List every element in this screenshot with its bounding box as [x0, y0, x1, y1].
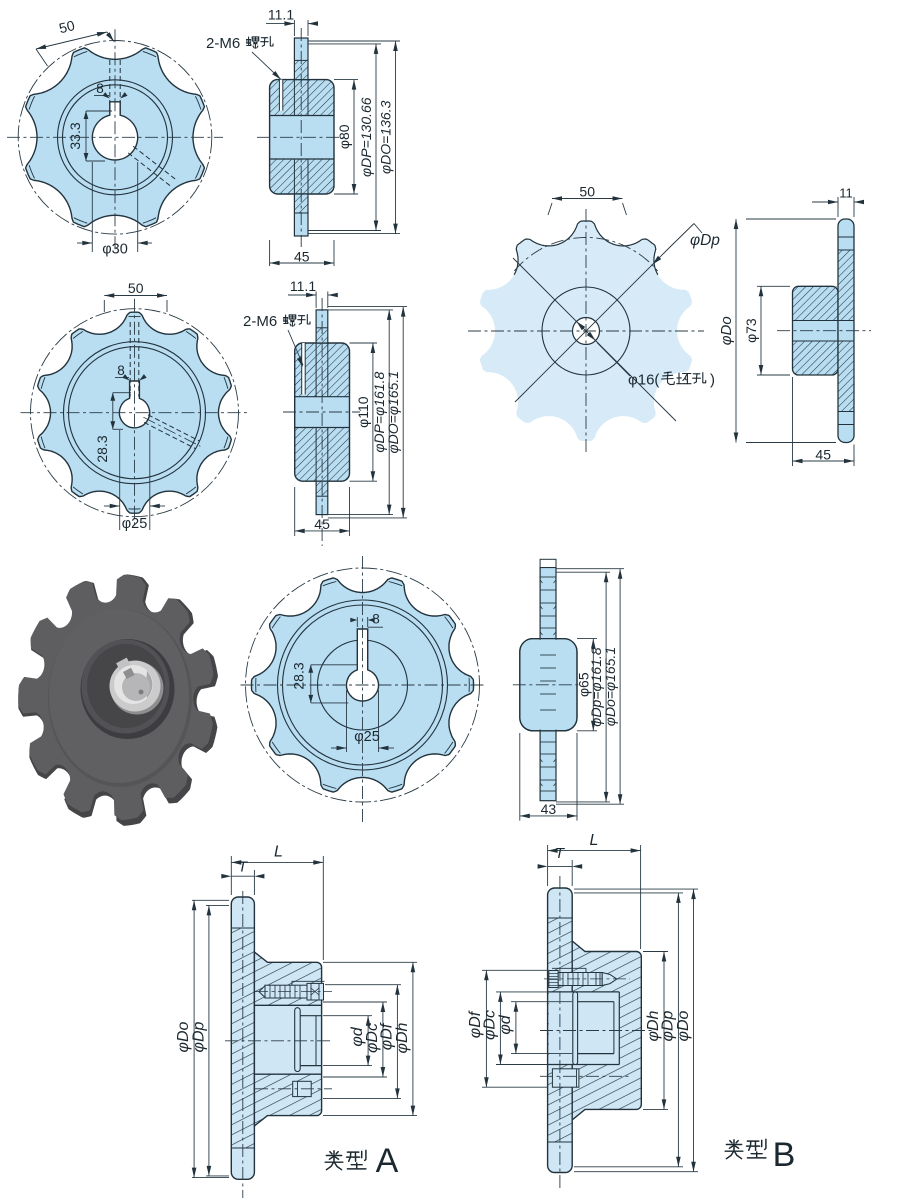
svg-text:φDp: φDp [191, 1021, 208, 1052]
svg-text:L: L [274, 844, 283, 861]
svg-text:φDp: φDp [660, 1010, 677, 1041]
svg-text:φDo: φDo [718, 316, 735, 345]
svg-text:φDp: φDp [690, 232, 720, 249]
svg-text:φ80: φ80 [336, 124, 352, 149]
svg-text:φd: φd [497, 1014, 514, 1034]
svg-text:45: 45 [314, 516, 330, 532]
svg-text:φDc: φDc [482, 1010, 499, 1040]
svg-text:11.1: 11.1 [290, 278, 316, 294]
svg-text:2-M6: 2-M6 [243, 313, 277, 330]
svg-text:28.3: 28.3 [291, 662, 307, 689]
svg-text:φ16(: φ16( [628, 372, 659, 389]
svg-text:φDo=φ165.1: φDo=φ165.1 [602, 647, 618, 726]
svg-text:φ73: φ73 [743, 318, 759, 343]
svg-text:φDo: φDo [675, 1010, 692, 1041]
svg-text:L: L [590, 832, 599, 849]
svg-text:45: 45 [815, 447, 831, 463]
svg-text:φDh: φDh [394, 1022, 411, 1053]
svg-text:43: 43 [541, 801, 557, 817]
svg-text:28.3: 28.3 [94, 435, 110, 462]
svg-text:φ25: φ25 [122, 516, 148, 532]
svg-text:φDo: φDo [175, 1021, 192, 1052]
svg-text:B: B [773, 1136, 796, 1174]
svg-text:50: 50 [128, 280, 144, 296]
svg-text:φ25: φ25 [354, 729, 380, 745]
svg-text:A: A [376, 1142, 399, 1180]
svg-text:φDP=130.66: φDP=130.66 [358, 97, 374, 177]
svg-text:50: 50 [579, 184, 595, 200]
svg-text:2-M6: 2-M6 [206, 35, 240, 52]
svg-text:φDf: φDf [379, 1022, 396, 1050]
svg-text:11.1: 11.1 [268, 7, 294, 23]
svg-text:45: 45 [294, 249, 310, 265]
svg-text:8: 8 [96, 81, 104, 96]
svg-text:8: 8 [117, 363, 125, 378]
svg-text:): ) [710, 372, 715, 389]
svg-text:33.3: 33.3 [67, 122, 83, 149]
svg-text:φ110: φ110 [355, 396, 371, 428]
svg-text:φDO=136.3: φDO=136.3 [378, 100, 394, 174]
svg-text:φ30: φ30 [102, 242, 128, 258]
svg-text:11: 11 [839, 186, 853, 201]
svg-text:φDO=φ165.1: φDO=φ165.1 [385, 371, 401, 453]
